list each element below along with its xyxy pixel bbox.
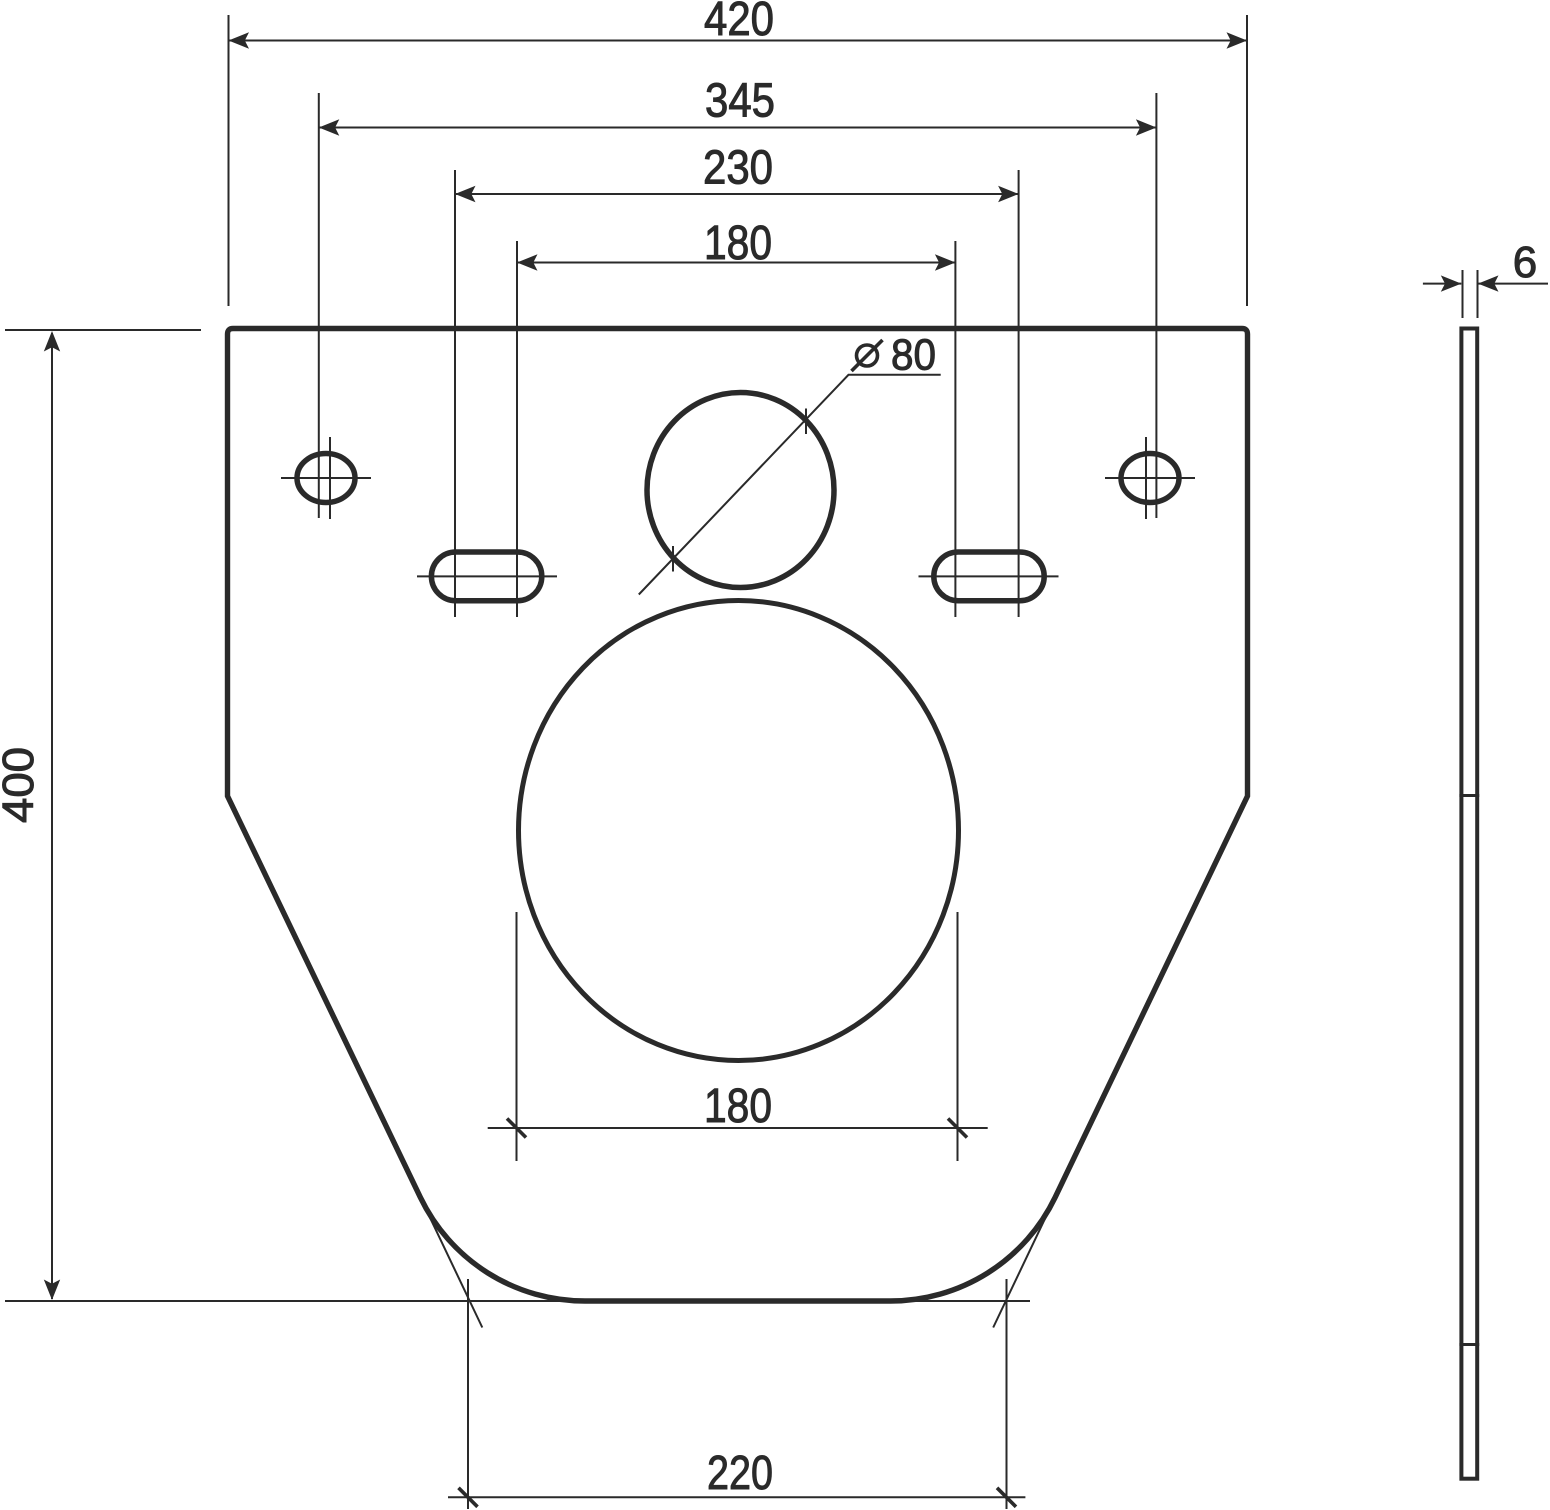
svg-text:6: 6 (1513, 238, 1537, 287)
svg-text:400: 400 (0, 747, 43, 823)
svg-text:420: 420 (704, 0, 774, 46)
svg-text:345: 345 (705, 75, 775, 128)
svg-text:80: 80 (891, 331, 936, 380)
svg-text:180: 180 (704, 1080, 772, 1133)
svg-text:230: 230 (703, 142, 773, 195)
svg-text:180: 180 (704, 217, 772, 270)
svg-text:220: 220 (707, 1447, 773, 1500)
